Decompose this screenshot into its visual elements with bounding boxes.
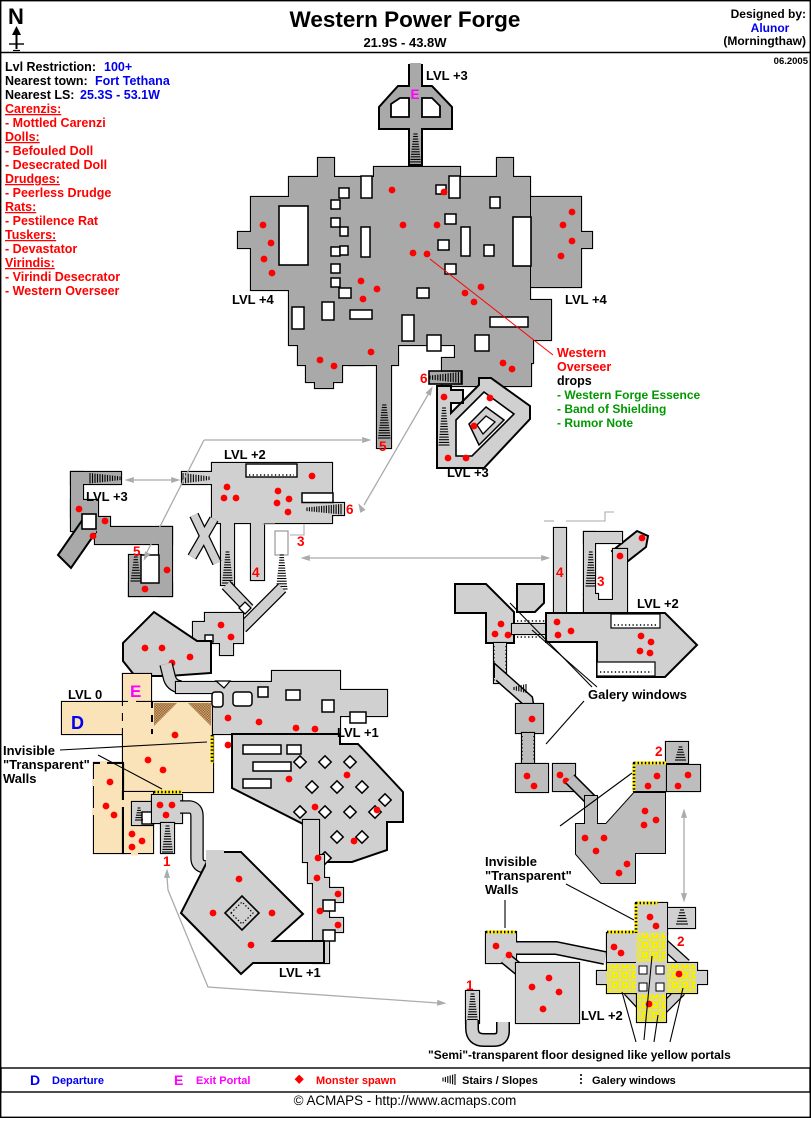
svg-text:E: E xyxy=(411,87,420,102)
svg-text:LVL +1: LVL +1 xyxy=(337,725,379,740)
svg-text:Tuskers:: Tuskers: xyxy=(5,228,56,242)
svg-text:"Transparent": "Transparent" xyxy=(3,757,90,772)
svg-text:E: E xyxy=(130,682,141,701)
svg-text:- Western Overseer: - Western Overseer xyxy=(5,284,120,298)
svg-text:2: 2 xyxy=(677,934,685,949)
svg-text:"Transparent": "Transparent" xyxy=(485,868,572,883)
svg-text:LVL +3: LVL +3 xyxy=(447,465,489,480)
svg-text:Invisible: Invisible xyxy=(3,743,55,758)
svg-text:Walls: Walls xyxy=(3,771,36,786)
svg-text:© ACMAPS - http://www.acmaps.c: © ACMAPS - http://www.acmaps.com xyxy=(294,1093,517,1108)
svg-text:25.3S - 53.1W: 25.3S - 53.1W xyxy=(80,88,160,102)
svg-text:LVL +3: LVL +3 xyxy=(86,489,128,504)
svg-text:LVL +2: LVL +2 xyxy=(637,596,679,611)
svg-text:N: N xyxy=(8,4,24,29)
svg-text:LVL +4: LVL +4 xyxy=(232,292,275,307)
svg-text:Galery windows: Galery windows xyxy=(588,687,687,702)
svg-text:Carenzis:: Carenzis: xyxy=(5,102,61,116)
svg-text:LVL +1: LVL +1 xyxy=(279,965,321,980)
svg-text:- Desecrated Doll: - Desecrated Doll xyxy=(5,158,107,172)
svg-text:LVL +2: LVL +2 xyxy=(581,1008,623,1023)
svg-text:4: 4 xyxy=(556,565,564,580)
svg-text:100+: 100+ xyxy=(104,60,132,74)
svg-text:Western: Western xyxy=(557,346,606,360)
svg-text:Monster spawn: Monster spawn xyxy=(316,1075,396,1087)
svg-text:6: 6 xyxy=(420,371,428,386)
svg-text:drops: drops xyxy=(557,374,592,388)
svg-text:Departure: Departure xyxy=(52,1075,104,1087)
svg-text:- Befouled Doll: - Befouled Doll xyxy=(5,144,93,158)
svg-text:5: 5 xyxy=(379,439,387,454)
svg-text:Invisible: Invisible xyxy=(485,854,537,869)
svg-text:D: D xyxy=(30,1072,40,1088)
svg-text:Designed by:: Designed by: xyxy=(731,7,806,21)
svg-text:D: D xyxy=(71,713,84,733)
svg-text:2: 2 xyxy=(655,744,663,759)
svg-text:- Peerless Drudge: - Peerless Drudge xyxy=(5,186,111,200)
svg-text:Walls: Walls xyxy=(485,882,518,897)
svg-text:Nearest LS:: Nearest LS: xyxy=(5,88,74,102)
svg-text:Overseer: Overseer xyxy=(557,360,611,374)
svg-text:6: 6 xyxy=(346,502,354,517)
svg-text:21.9S - 43.8W: 21.9S - 43.8W xyxy=(363,35,447,50)
svg-text:Stairs / Slopes: Stairs / Slopes xyxy=(462,1075,538,1087)
svg-text:Galery windows: Galery windows xyxy=(592,1075,676,1087)
svg-text:4: 4 xyxy=(252,565,260,580)
svg-text:1: 1 xyxy=(466,978,474,993)
svg-text:LVL +4: LVL +4 xyxy=(565,292,608,307)
svg-text:LVL +3: LVL +3 xyxy=(426,68,468,83)
svg-text:- Pestilence Rat: - Pestilence Rat xyxy=(5,214,99,228)
svg-text:- Devastator: - Devastator xyxy=(5,242,77,256)
svg-text:Dolls:: Dolls: xyxy=(5,130,40,144)
svg-text:Virindis:: Virindis: xyxy=(5,256,55,270)
svg-text:LVL 0: LVL 0 xyxy=(68,687,102,702)
svg-text:1: 1 xyxy=(163,854,171,869)
svg-text:LVL +2: LVL +2 xyxy=(224,447,266,462)
svg-text:- Virindi Desecrator: - Virindi Desecrator xyxy=(5,270,120,284)
svg-text:- Band of Shielding: - Band of Shielding xyxy=(557,402,666,416)
svg-text:5: 5 xyxy=(133,544,141,559)
svg-text:- Western Forge Essence: - Western Forge Essence xyxy=(557,388,700,402)
svg-text:- Rumor Note: - Rumor Note xyxy=(557,416,633,430)
svg-text:"Semi"-transparent floor desig: "Semi"-transparent floor designed like y… xyxy=(428,1048,731,1062)
svg-text:06.2005: 06.2005 xyxy=(774,56,809,67)
svg-text:Alunor: Alunor xyxy=(751,21,790,35)
svg-text:E: E xyxy=(174,1072,183,1088)
svg-text:- Mottled Carenzi: - Mottled Carenzi xyxy=(5,116,106,130)
svg-text:Drudges:: Drudges: xyxy=(5,172,60,186)
svg-text:Exit Portal: Exit Portal xyxy=(196,1075,250,1087)
svg-text:3: 3 xyxy=(297,534,305,549)
svg-text:Western Power Forge: Western Power Forge xyxy=(290,7,521,32)
svg-text:Fort Tethana: Fort Tethana xyxy=(95,74,171,88)
svg-text:3: 3 xyxy=(597,574,605,589)
svg-text:Rats:: Rats: xyxy=(5,200,36,214)
svg-text:(Morningthaw): (Morningthaw) xyxy=(723,34,806,48)
svg-text:Nearest town:: Nearest town: xyxy=(5,74,88,88)
svg-text:Lvl Restriction:: Lvl Restriction: xyxy=(5,60,96,74)
